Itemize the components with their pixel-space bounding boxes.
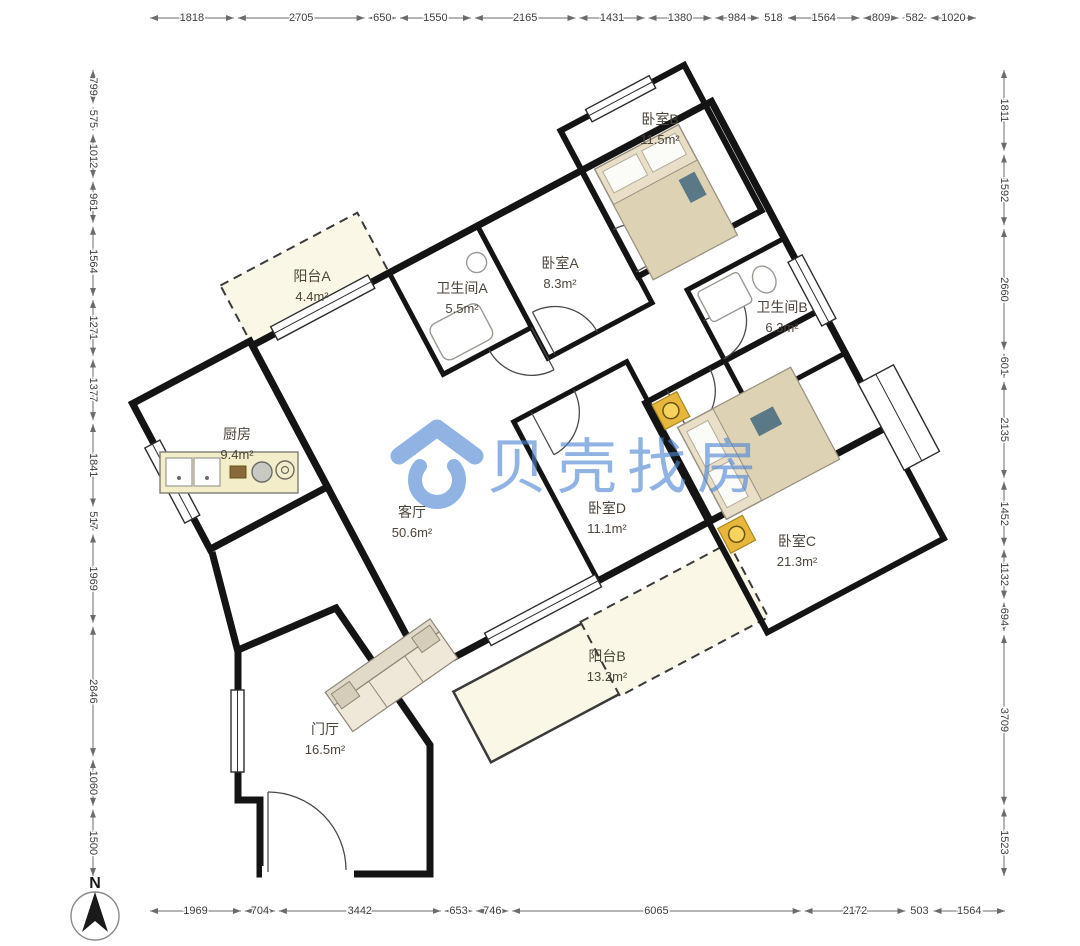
room-area-living-room: 50.6m² [392, 525, 433, 540]
dim-value: 1132 [998, 562, 1010, 586]
dim-value: 2705 [289, 12, 313, 24]
room-area-balcony-b: 13.2m² [587, 669, 628, 684]
sofa [325, 619, 457, 732]
room-area-bathroom-a: 5.5m² [445, 301, 479, 316]
room-label-kitchen: 厨房 [223, 426, 251, 442]
room-area-bedroom-b: 11.5m² [640, 132, 680, 147]
dim-value: 2135 [998, 418, 1010, 442]
dim-side-2: 7995751012961156412711377184151719692846… [87, 70, 99, 876]
bed-bedroom-b [595, 125, 738, 280]
room-area-kitchen: 9.4m² [220, 447, 254, 462]
dim-value: 746 [483, 905, 501, 917]
dim-value: 1523 [998, 830, 1010, 854]
room-label-balcony-a: 阳台A [293, 268, 331, 284]
room-area-bedroom-a: 8.3m² [543, 276, 577, 291]
dim-value: 503 [910, 905, 928, 917]
dim-value: 3442 [348, 905, 372, 917]
compass-needle [82, 892, 108, 932]
room-area-bathroom-b: 6.3m² [765, 320, 799, 335]
dim-value: 1012 [87, 144, 99, 168]
dim-value: 1271 [87, 316, 99, 340]
dim-value: 1969 [87, 566, 99, 590]
room-label-bedroom-a: 卧室A [541, 255, 579, 271]
dim-value: 961 [87, 193, 99, 211]
room-area-balcony-a: 4.4m² [295, 289, 329, 304]
dim-value: 1550 [423, 12, 447, 24]
floor-plan-page: 贝壳找房 N 卧室B11.5m²卧室A8.3m²卫生间A5.5m²阳台A4.4m… [0, 0, 1080, 946]
room-label-bedroom-d: 卧室D [588, 500, 626, 516]
floor-plan-canvas: 贝壳找房 N 卧室B11.5m²卧室A8.3m²卫生间A5.5m²阳台A4.4m… [0, 0, 1080, 946]
dim-value: 799 [87, 78, 99, 96]
dim-value: 601 [998, 357, 1010, 375]
room-label-living-room: 客厅 [398, 504, 426, 520]
dim-value: 1452 [998, 501, 1010, 525]
dim-side-1: 19697043442653746606521725031564 [150, 905, 1005, 917]
dim-value: 1500 [87, 831, 99, 855]
room-label-bedroom-b: 卧室B [641, 111, 678, 127]
dim-value: 2846 [87, 679, 99, 703]
dim-value: 1592 [998, 178, 1010, 202]
dim-value: 1060 [87, 771, 99, 795]
dim-value: 1380 [668, 12, 692, 24]
dim-value: 2172 [843, 905, 867, 917]
dim-value: 3709 [998, 708, 1010, 732]
dim-side-3: 18111592266060121351452113269437091523 [998, 70, 1010, 876]
dim-value: 2165 [513, 12, 537, 24]
watermark-text: 贝壳找房 [487, 434, 767, 501]
room-area-bedroom-d: 11.1m² [587, 521, 627, 536]
room-label-bedroom-c: 卧室C [778, 533, 816, 549]
dim-value: 653 [449, 905, 467, 917]
room-label-balcony-b: 阳台B [588, 648, 625, 664]
beike-logo-icon [399, 428, 475, 502]
dim-value: 517 [87, 511, 99, 529]
dim-value: 704 [251, 905, 269, 917]
dim-value: 694 [998, 608, 1010, 626]
dim-value: 2660 [998, 277, 1010, 301]
dim-value: 650 [373, 12, 391, 24]
dim-value: 575 [87, 110, 99, 128]
dim-value: 1564 [957, 905, 981, 917]
dim-value: 1431 [600, 12, 624, 24]
dim-value: 984 [728, 12, 746, 24]
dim-value: 1969 [183, 905, 207, 917]
compass-north-label: N [89, 875, 101, 892]
dim-value: 1841 [87, 453, 99, 477]
room-area-entry-hall: 16.5m² [305, 742, 346, 757]
dim-value: 1020 [941, 12, 965, 24]
entry-hall-group [212, 552, 458, 878]
entrance-door [262, 792, 354, 878]
dim-value: 809 [872, 12, 890, 24]
dim-value: 1811 [998, 99, 1010, 123]
wall-segment [212, 552, 238, 652]
beike-watermark: 贝壳找房 [399, 428, 767, 502]
dim-value: 1377 [87, 378, 99, 402]
compass: N [71, 875, 119, 940]
dim-value: 6065 [644, 905, 668, 917]
dim-value: 518 [764, 12, 782, 24]
dim-value: 582 [905, 12, 923, 24]
room-label-entry-hall: 门厅 [311, 721, 339, 737]
dim-value: 1564 [811, 12, 835, 24]
room-label-bathroom-b: 卫生间B [756, 299, 807, 315]
room-label-bathroom-a: 卫生间A [436, 280, 488, 296]
dim-value: 1564 [87, 249, 99, 273]
room-area-bedroom-c: 21.3m² [777, 554, 818, 569]
dim-side-0: 1818270565015502165143113809845181564809… [150, 12, 976, 24]
dim-value: 1818 [180, 12, 204, 24]
